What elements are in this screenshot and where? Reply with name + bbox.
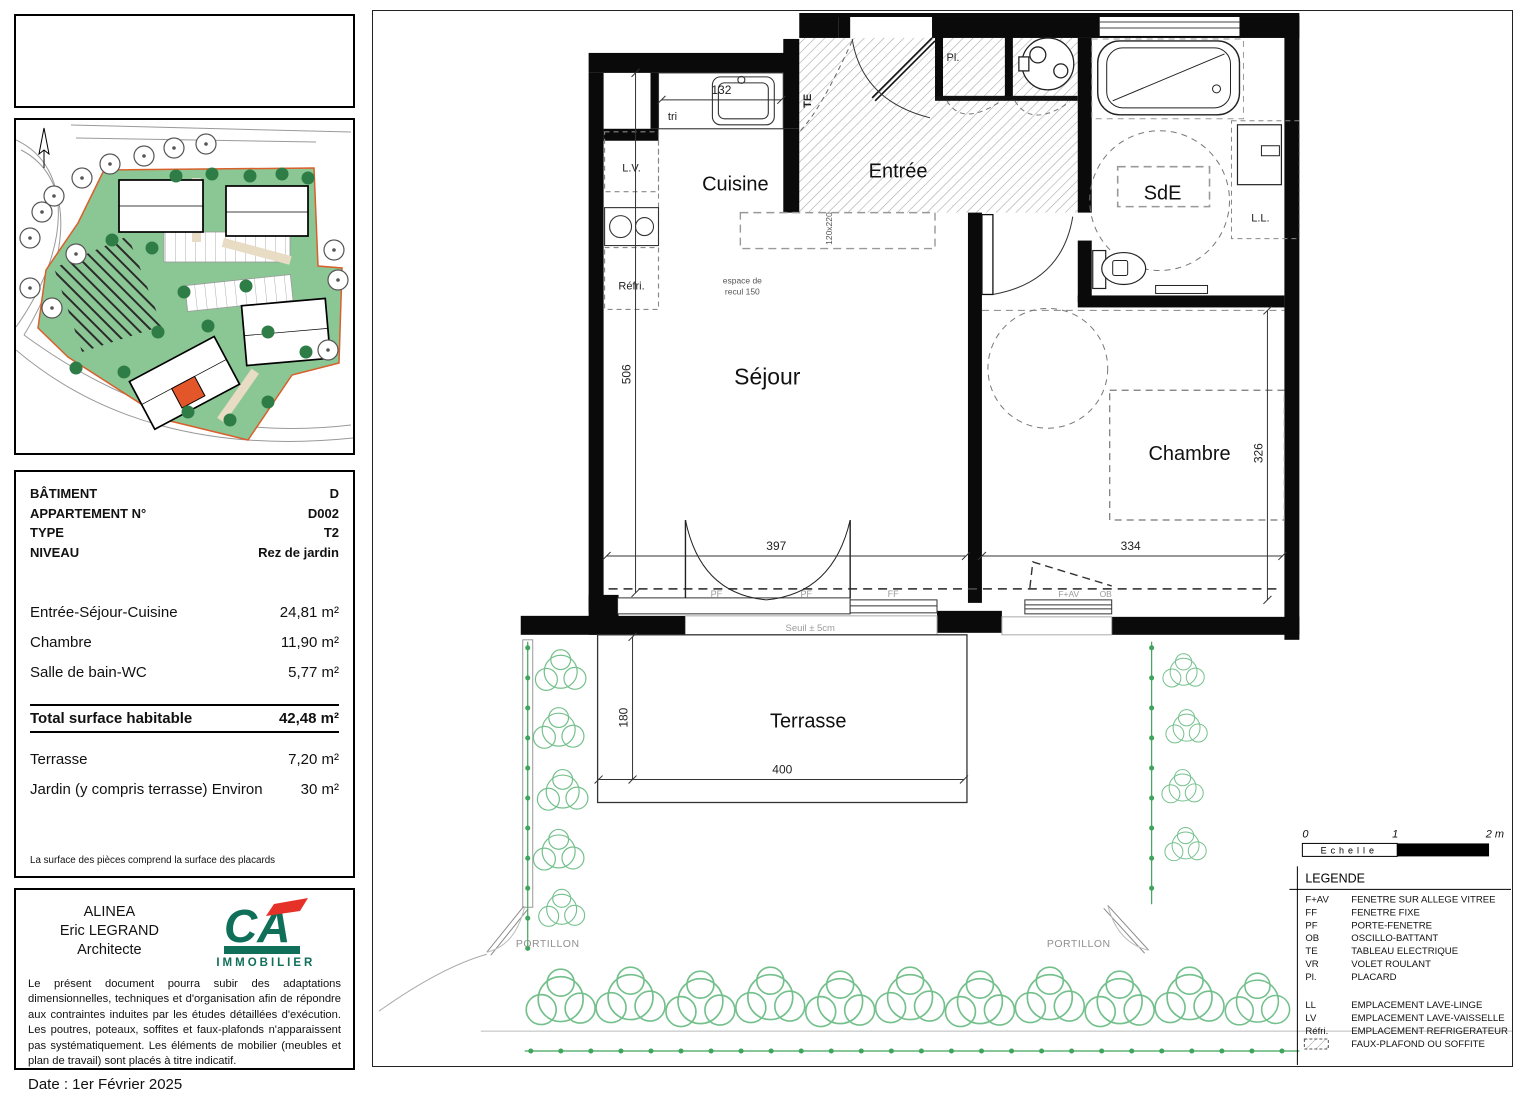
portillon-label: PORTILLON (516, 939, 580, 950)
soffit-hatch-icon (1304, 1039, 1328, 1049)
fav-label: F+AV (1058, 589, 1079, 599)
passage-dim-label: 120x220 (824, 212, 834, 245)
surface-row: Chambre11,90 m² (30, 628, 339, 658)
room-label-cuisine: Cuisine (702, 174, 769, 196)
legend-items: F+AVFENETRE SUR ALLEGE VITREE FFFENETRE … (1304, 894, 1508, 1050)
dim-334: 334 (1121, 539, 1141, 553)
svg-text:OSCILLO-BATTANT: OSCILLO-BATTANT (1351, 933, 1438, 944)
architect-names: ALINEA Eric LEGRAND Architecte (28, 898, 191, 969)
dashed-annotations (740, 213, 1284, 588)
svg-text:FENETRE SUR ALLEGE VITREE: FENETRE SUR ALLEGE VITREE (1351, 894, 1495, 905)
ll-label: L.L. (1251, 213, 1269, 225)
svg-text:TABLEAU ELECTRIQUE: TABLEAU ELECTRIQUE (1351, 946, 1458, 957)
architect-title: Architecte (28, 941, 191, 960)
surface-label: Entrée-Séjour-Cuisine (30, 598, 178, 628)
surface-row: Entrée-Séjour-Cuisine24,81 m² (30, 598, 339, 628)
recul-label-2: recul 150 (725, 286, 760, 296)
svg-text:PLACARD: PLACARD (1351, 972, 1396, 983)
room-label-sejour: Séjour (734, 363, 801, 389)
pf-label: PF (801, 589, 813, 599)
building-a (119, 180, 203, 232)
architect-name: Eric LEGRAND (28, 922, 191, 941)
surface-row: Jardin (y compris terrasse) Environ30 m² (30, 775, 339, 805)
info-value: Rez de jardin (258, 543, 339, 563)
info-label: APPARTEMENT N° (30, 504, 146, 524)
svg-text:FENETRE FIXE: FENETRE FIXE (1351, 907, 1420, 918)
info-row: APPARTEMENT N°D002 (30, 504, 339, 524)
info-label: TYPE (30, 523, 64, 543)
window-handle-icon (1261, 146, 1279, 156)
svg-text:FAUX-PLAFOND OU SOFFITE: FAUX-PLAFOND OU SOFFITE (1351, 1039, 1485, 1050)
floor-plan-drawing: Cuisine Entrée SdE Séjour Chambre Terras… (373, 11, 1512, 1066)
svg-text:OB: OB (1305, 933, 1319, 944)
info-value: D (330, 484, 339, 504)
legend-title: LEGENDE (1305, 871, 1365, 885)
info-value: T2 (324, 523, 339, 543)
surface-value: 11,90 m² (281, 628, 339, 658)
building-c (242, 298, 331, 365)
site-plan-drawing (16, 120, 353, 453)
dim-397: 397 (766, 539, 786, 553)
info-row: NIVEAURez de jardin (30, 543, 339, 563)
floor-plan-page: Cuisine Entrée SdE Séjour Chambre Terras… (372, 10, 1513, 1067)
room-label-entree: Entrée (869, 161, 928, 183)
info-row: BÂTIMENTD (30, 484, 339, 504)
lv-label: L.V. (622, 163, 641, 175)
svg-text:LV: LV (1305, 1013, 1317, 1024)
svg-text:TE: TE (1305, 946, 1317, 957)
svg-text:VOLET ROULANT: VOLET ROULANT (1351, 959, 1431, 970)
apartment-info-box: BÂTIMENTD APPARTEMENT N°D002 TYPET2 NIVE… (14, 470, 355, 878)
svg-text:EMPLACEMENT REFRIGERATEUR: EMPLACEMENT REFRIGERATEUR (1351, 1026, 1508, 1037)
legend: LEGENDE F+AVFENETRE SUR ALLEGE VITREE FF… (1289, 866, 1511, 1065)
portillon-label: PORTILLON (1047, 939, 1111, 950)
dim-506: 506 (620, 364, 634, 384)
ca-immobilier-logo: CA IMMOBILIER (191, 898, 341, 969)
scale-0: 0 (1302, 828, 1309, 840)
site-plan (14, 118, 355, 455)
scale-label: Echelle (1321, 845, 1378, 855)
architect-box: ALINEA Eric LEGRAND Architecte CA IMMOBI… (14, 888, 355, 1070)
dim-180: 180 (617, 707, 631, 727)
dim-326: 326 (1251, 443, 1265, 463)
top-windows (1100, 17, 1240, 36)
dim-132: 132 (711, 83, 731, 97)
svg-text:VR: VR (1305, 959, 1318, 970)
surface-value: 7,20 m² (288, 745, 339, 775)
surface-row: Terrasse7,20 m² (30, 745, 339, 775)
surface-label: Salle de bain-WC (30, 658, 147, 688)
scale-1: 1 (1392, 828, 1398, 840)
te-label: TE (802, 94, 814, 108)
surface-value: 24,81 m² (280, 598, 339, 628)
info-row: TYPET2 (30, 523, 339, 543)
architect-company: ALINEA (28, 903, 191, 922)
residence-logo: Kuzh-Heol (14, 14, 355, 108)
total-value: 42,48 m² (279, 710, 339, 727)
dim-400: 400 (772, 763, 792, 777)
surface-row: Salle de bain-WC5,77 m² (30, 658, 339, 688)
pl-label: Pl. (947, 52, 960, 64)
sde-door (982, 215, 1073, 295)
seuil-label: Seuil ± 5cm (786, 623, 836, 634)
disclaimer-text: Le présent document pourra subir des ada… (28, 977, 341, 1069)
pf-label: PF (711, 589, 723, 599)
fridge-zone (605, 248, 659, 310)
ca-brand-text: IMMOBILIER (216, 957, 315, 969)
towel-bar-icon (1156, 285, 1208, 293)
tri-label: tri (668, 111, 677, 123)
residence-name: Kuzh-Heol (60, 36, 310, 87)
scale-bar: 0 1 2 m Echelle (1302, 828, 1504, 856)
svg-text:EMPLACEMENT LAVE-VAISSELLE: EMPLACEMENT LAVE-VAISSELLE (1351, 1013, 1504, 1024)
ff-label: FF (888, 589, 899, 599)
total-label: Total surface habitable (30, 710, 192, 727)
surface-value: 30 m² (301, 775, 339, 805)
svg-text:EMPLACEMENT LAVE-LINGE: EMPLACEMENT LAVE-LINGE (1351, 1000, 1482, 1011)
ob-label: OB (1100, 589, 1113, 599)
surface-note: La surface des pièces comprend la surfac… (30, 855, 275, 866)
room-label-chambre: Chambre (1149, 443, 1231, 465)
svg-text:Pl.: Pl. (1305, 972, 1316, 983)
info-label: BÂTIMENT (30, 484, 97, 504)
svg-text:LL: LL (1305, 1000, 1316, 1011)
total-surface-row: Total surface habitable 42,48 m² (30, 704, 339, 733)
svg-text:F+AV: F+AV (1305, 894, 1329, 905)
north-compass-icon (39, 128, 49, 168)
refri-label: Réfri. (618, 280, 644, 292)
bathroom-fixtures (1090, 39, 1300, 294)
ca-logo-icon: CA (214, 898, 318, 956)
surface-label: Chambre (30, 628, 92, 658)
svg-text:FF: FF (1305, 907, 1317, 918)
scale-2m: 2 m (1485, 828, 1504, 840)
info-value: D002 (308, 504, 339, 524)
recul-label-1: espace de (723, 275, 762, 285)
surface-label: Terrasse (30, 745, 88, 775)
room-label-terrasse: Terrasse (770, 711, 847, 733)
info-label: NIVEAU (30, 543, 79, 563)
fav-window (1025, 600, 1112, 614)
building-b (226, 186, 308, 236)
svg-text:PF: PF (1305, 920, 1317, 931)
svg-text:Réfri.: Réfri. (1305, 1026, 1328, 1037)
room-label-sde: SdE (1144, 183, 1182, 205)
svg-text:PORTE-FENETRE: PORTE-FENETRE (1351, 920, 1432, 931)
surface-label: Jardin (y compris terrasse) Environ (30, 775, 263, 805)
surface-value: 5,77 m² (288, 658, 339, 688)
